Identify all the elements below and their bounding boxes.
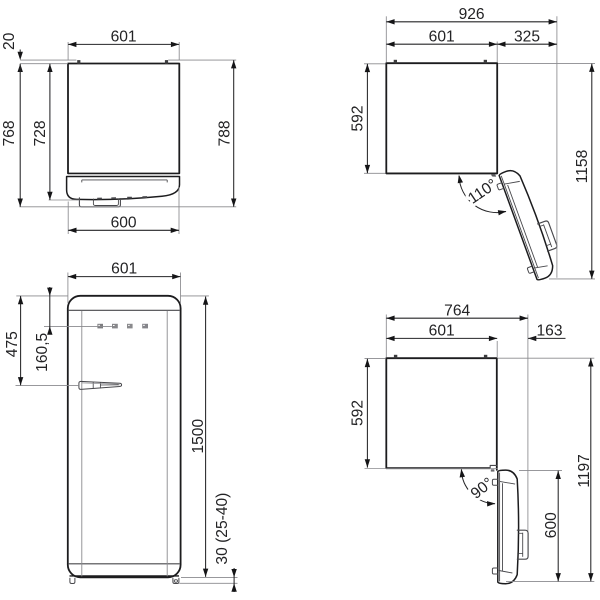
svg-text:160,5: 160,5 xyxy=(34,332,51,371)
svg-text:1197: 1197 xyxy=(576,454,593,488)
svg-text:475: 475 xyxy=(4,331,21,357)
svg-text:601: 601 xyxy=(111,29,137,46)
svg-text:1500: 1500 xyxy=(190,419,207,454)
svg-text:592: 592 xyxy=(350,400,367,426)
svg-text:768: 768 xyxy=(1,120,18,146)
svg-text:30 (25-40): 30 (25-40) xyxy=(214,493,231,565)
svg-text:325: 325 xyxy=(514,29,540,46)
svg-text:728: 728 xyxy=(32,120,49,146)
svg-text:926: 926 xyxy=(459,6,485,23)
svg-text:592: 592 xyxy=(350,105,367,131)
svg-text:601: 601 xyxy=(429,29,455,46)
svg-text:163: 163 xyxy=(536,323,562,340)
svg-text:1158: 1158 xyxy=(574,150,591,184)
svg-text:601: 601 xyxy=(429,323,455,340)
svg-text:600: 600 xyxy=(543,512,560,538)
svg-text:600: 600 xyxy=(111,215,137,232)
svg-text:764: 764 xyxy=(444,303,470,320)
svg-text:788: 788 xyxy=(216,120,233,146)
svg-text:20: 20 xyxy=(1,32,18,50)
svg-text:601: 601 xyxy=(111,260,137,277)
